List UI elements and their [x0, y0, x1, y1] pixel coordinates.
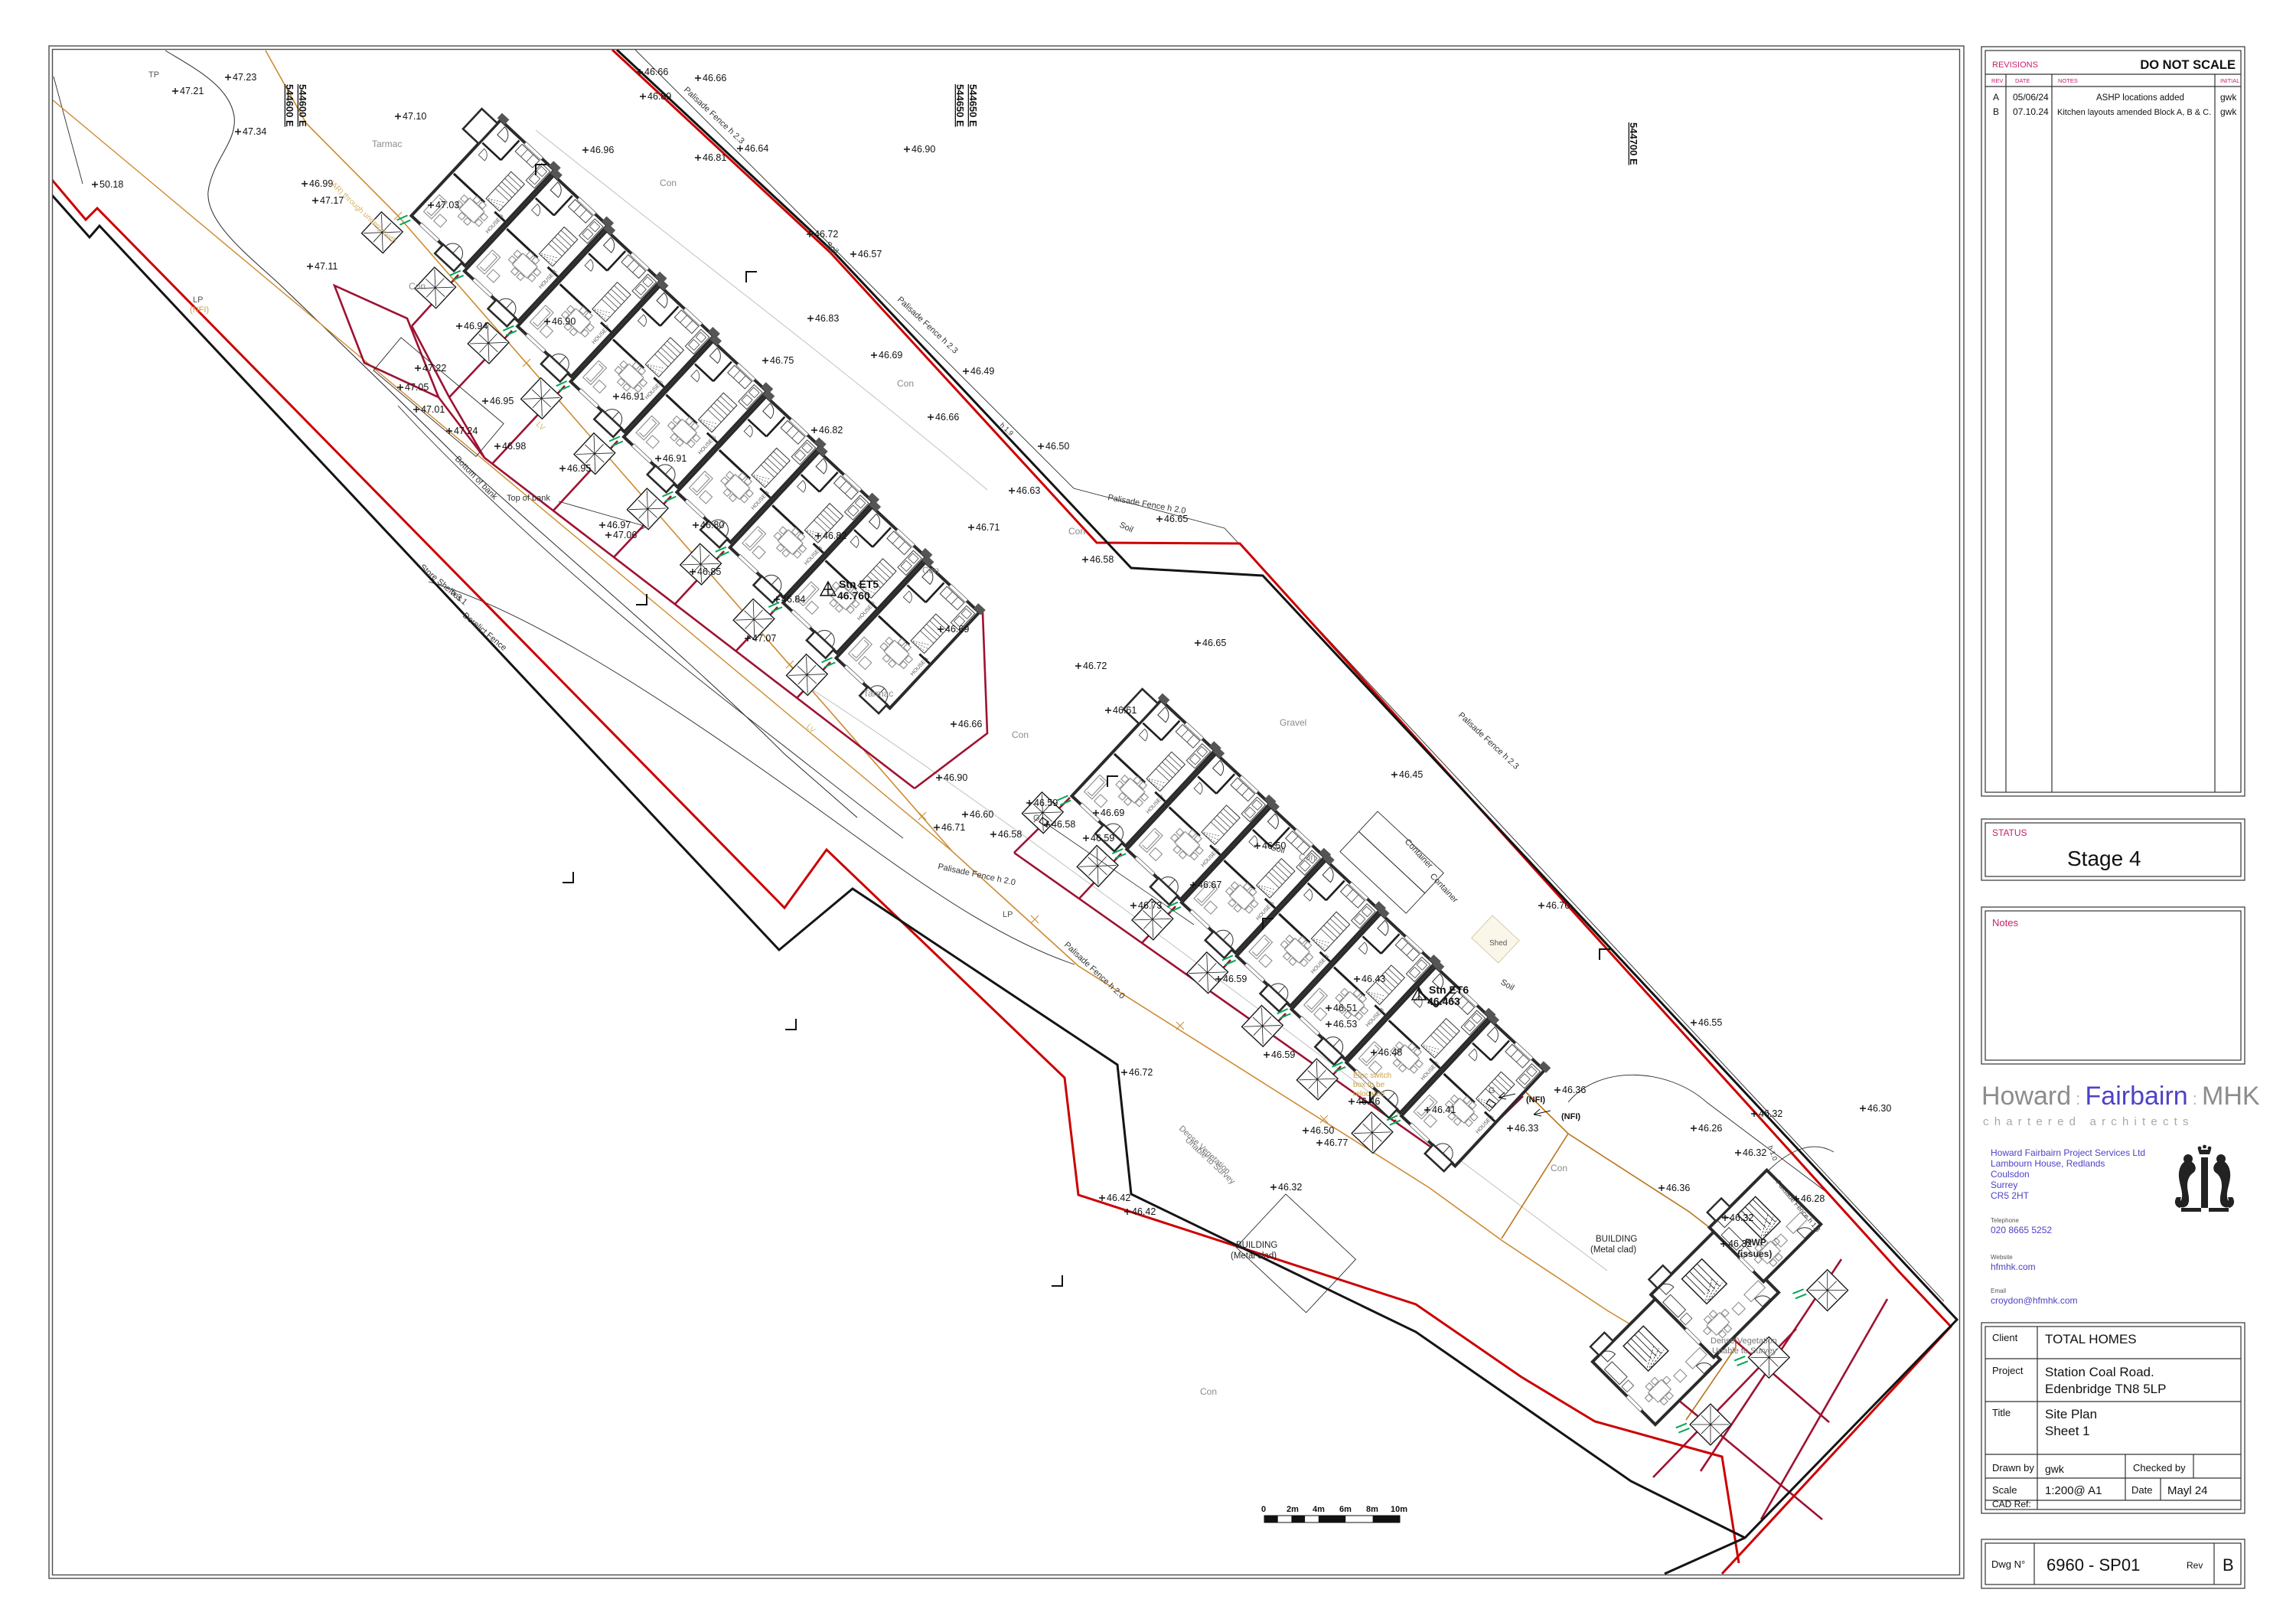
svg-text:46.71: 46.71 — [976, 522, 1000, 533]
svg-text:47.23: 47.23 — [233, 72, 256, 83]
svg-text:Tarmac: Tarmac — [863, 688, 893, 699]
svg-text:544600 E: 544600 E — [297, 84, 308, 127]
svg-text:Sheet 1: Sheet 1 — [2045, 1424, 2090, 1438]
svg-text:0: 0 — [1261, 1505, 1266, 1514]
svg-text:46.81: 46.81 — [703, 152, 726, 163]
svg-text:46.95: 46.95 — [567, 463, 591, 474]
svg-text:46.98: 46.98 — [502, 441, 526, 452]
svg-text:47.01: 47.01 — [421, 404, 445, 415]
svg-text:46.90: 46.90 — [912, 144, 935, 155]
svg-text:(NFI): (NFI) — [1561, 1112, 1580, 1121]
svg-text:46.64: 46.64 — [745, 143, 768, 154]
svg-text:LP: LP — [193, 295, 203, 305]
svg-text:Mayl 24: Mayl 24 — [2167, 1484, 2208, 1497]
svg-text:CAD Ref:: CAD Ref: — [1992, 1499, 2031, 1509]
svg-text:Lambourn House, Redlands: Lambourn House, Redlands — [1991, 1158, 2105, 1169]
svg-text:NOTES: NOTES — [2058, 77, 2078, 84]
svg-text:46.30: 46.30 — [1867, 1103, 1891, 1114]
svg-text:Con: Con — [409, 281, 426, 292]
svg-text:46.90: 46.90 — [552, 316, 576, 327]
svg-text:(issues): (issues) — [1737, 1248, 1772, 1259]
svg-text:46.50: 46.50 — [1045, 441, 1069, 452]
svg-text:gwk: gwk — [2220, 92, 2237, 103]
svg-text:46.33: 46.33 — [1515, 1123, 1538, 1134]
svg-text:46.32: 46.32 — [1730, 1212, 1753, 1223]
svg-text:07.10.24: 07.10.24 — [2013, 106, 2049, 117]
svg-text:Stage 4: Stage 4 — [2067, 847, 2141, 870]
svg-text:STATUS: STATUS — [1992, 827, 2027, 838]
svg-text:46.66: 46.66 — [703, 73, 726, 83]
svg-text:46.59: 46.59 — [1034, 798, 1058, 808]
svg-text:46.69: 46.69 — [879, 350, 902, 361]
svg-text:46.51: 46.51 — [1333, 1003, 1357, 1013]
svg-text:46.65: 46.65 — [1202, 638, 1226, 648]
svg-text:TOTAL HOMES: TOTAL HOMES — [2045, 1332, 2137, 1346]
svg-text:Unable to Survey: Unable to Survey — [1712, 1346, 1777, 1356]
svg-text:46.36: 46.36 — [1666, 1183, 1690, 1193]
svg-text:B: B — [2223, 1555, 2234, 1575]
svg-text:Dwg N°: Dwg N° — [1991, 1558, 2025, 1570]
svg-text:Rev: Rev — [2187, 1560, 2203, 1571]
svg-text:Scale: Scale — [1992, 1484, 2017, 1496]
svg-text:47.05: 47.05 — [405, 382, 429, 393]
svg-text:46.59: 46.59 — [1091, 833, 1114, 844]
svg-text:G: G — [1033, 814, 1040, 823]
svg-text:croydon@hfmhk.com: croydon@hfmhk.com — [1991, 1295, 2078, 1306]
svg-text:hfmhk.com: hfmhk.com — [1991, 1261, 2036, 1272]
svg-text:(Metal clad): (Metal clad) — [1590, 1245, 1636, 1255]
svg-text:47.21: 47.21 — [180, 86, 204, 96]
svg-text:LP: LP — [1003, 910, 1013, 919]
svg-text:46.49: 46.49 — [970, 366, 994, 377]
svg-text:Date: Date — [2131, 1484, 2152, 1496]
svg-text:BUILDING: BUILDING — [1596, 1235, 1637, 1244]
svg-text:DATE: DATE — [2015, 77, 2030, 84]
svg-text:05/06/24: 05/06/24 — [2013, 92, 2049, 103]
svg-text:Project: Project — [1992, 1365, 2024, 1376]
svg-text:RWP: RWP — [1745, 1237, 1766, 1248]
svg-text:46.75: 46.75 — [770, 355, 794, 366]
svg-text:A: A — [1993, 92, 1999, 103]
svg-text:46.66: 46.66 — [958, 719, 982, 729]
svg-text:Top of bank: Top of bank — [507, 494, 550, 503]
svg-text:46.58: 46.58 — [1052, 819, 1075, 830]
svg-text:ASHP locations added: ASHP locations added — [2096, 93, 2184, 103]
svg-text:544600 E: 544600 E — [284, 84, 295, 127]
svg-text:47.07: 47.07 — [752, 633, 776, 644]
svg-text:Con: Con — [660, 178, 677, 188]
svg-text:6m: 6m — [1339, 1505, 1352, 1514]
svg-text:chartered architects: chartered architects — [1983, 1115, 2194, 1128]
svg-text:46.42: 46.42 — [1132, 1206, 1156, 1217]
svg-text:Edenbridge TN8 5LP: Edenbridge TN8 5LP — [2045, 1382, 2166, 1396]
svg-text:6960 - SP01: 6960 - SP01 — [2047, 1555, 2140, 1575]
svg-text:gwk: gwk — [2220, 106, 2237, 117]
svg-text:Notes: Notes — [1992, 917, 2018, 928]
svg-text:relocated: relocated — [1353, 1090, 1384, 1098]
svg-text:B: B — [1993, 106, 1999, 117]
svg-text:46.61: 46.61 — [1113, 705, 1137, 716]
svg-text:Telephone: Telephone — [1991, 1217, 2019, 1224]
svg-text:46.72: 46.72 — [1083, 661, 1107, 671]
svg-text:46.28: 46.28 — [1801, 1193, 1825, 1204]
svg-text:46.66: 46.66 — [644, 67, 668, 77]
svg-text:544650 E: 544650 E — [954, 84, 966, 127]
svg-text:46.45: 46.45 — [1399, 769, 1423, 780]
svg-text:46.97: 46.97 — [607, 520, 631, 530]
svg-text:Con: Con — [897, 378, 914, 389]
svg-text:Checked by: Checked by — [2133, 1462, 2186, 1474]
svg-text:46.26: 46.26 — [1698, 1123, 1722, 1134]
svg-text:4m: 4m — [1313, 1505, 1325, 1514]
svg-text:46.32: 46.32 — [1759, 1108, 1782, 1119]
svg-text:46.66: 46.66 — [935, 412, 959, 423]
svg-text:46.96: 46.96 — [590, 145, 614, 155]
svg-text:Con: Con — [1012, 729, 1029, 740]
svg-text:Con: Con — [1068, 526, 1085, 537]
svg-text:46.59: 46.59 — [1223, 974, 1247, 984]
svg-text:2m: 2m — [1287, 1505, 1299, 1514]
svg-text:Con: Con — [1551, 1163, 1567, 1173]
svg-text:46.463: 46.463 — [1427, 995, 1460, 1007]
svg-text:46.55: 46.55 — [1698, 1017, 1722, 1028]
svg-text:Website: Website — [1991, 1254, 2013, 1261]
svg-text:REV: REV — [1991, 77, 2003, 84]
svg-text:Stn ET5: Stn ET5 — [839, 578, 879, 590]
svg-text:46.73: 46.73 — [1138, 900, 1162, 911]
svg-text:gwk: gwk — [2045, 1463, 2065, 1475]
svg-text:Howard Fairbairn Project Servi: Howard Fairbairn Project Services Ltd — [1991, 1147, 2145, 1158]
svg-text:46.67: 46.67 — [1198, 880, 1221, 890]
svg-text:Surrey: Surrey — [1991, 1180, 2017, 1190]
svg-text:46.70: 46.70 — [1546, 900, 1570, 911]
svg-text:(Metal clad): (Metal clad) — [1231, 1252, 1277, 1261]
svg-text:46.63: 46.63 — [1016, 485, 1040, 496]
svg-text:46.77: 46.77 — [1324, 1137, 1348, 1148]
svg-text:46.59: 46.59 — [1271, 1049, 1295, 1060]
svg-text:Tarmac: Tarmac — [372, 139, 402, 149]
svg-text:Kitchen layouts amended Block: Kitchen layouts amended Block A, B & C. — [2057, 108, 2211, 117]
svg-text:46.83: 46.83 — [815, 313, 839, 324]
svg-text:10m: 10m — [1391, 1505, 1407, 1514]
svg-text:Stn ET6: Stn ET6 — [1429, 984, 1469, 996]
svg-text:8m: 8m — [1366, 1505, 1378, 1514]
svg-text:G: G — [1489, 1086, 1495, 1095]
svg-text:box to be: box to be — [1353, 1081, 1385, 1089]
svg-text:Gravel: Gravel — [1280, 717, 1306, 728]
svg-text:(NFI): (NFI) — [1526, 1095, 1545, 1105]
svg-text:Site Plan: Site Plan — [2045, 1407, 2097, 1421]
svg-text:46.32: 46.32 — [1743, 1147, 1766, 1158]
svg-text:46.42: 46.42 — [1107, 1193, 1130, 1203]
svg-text:(NFI): (NFI) — [190, 305, 209, 315]
svg-text:46.91: 46.91 — [621, 391, 644, 402]
svg-text:CR5 2HT: CR5 2HT — [1991, 1190, 2030, 1201]
svg-text:Coulsdon: Coulsdon — [1991, 1169, 2030, 1180]
svg-text:DO NOT SCALE: DO NOT SCALE — [2140, 58, 2236, 72]
svg-text:46.80: 46.80 — [700, 520, 724, 530]
svg-text:46.85: 46.85 — [697, 566, 721, 577]
svg-text:46.72: 46.72 — [814, 229, 838, 240]
svg-text:46.43: 46.43 — [1362, 974, 1385, 984]
svg-text:46.69: 46.69 — [945, 624, 969, 635]
svg-text:47.03: 47.03 — [435, 200, 459, 211]
svg-text:Con: Con — [922, 565, 939, 576]
svg-text:REVISIONS: REVISIONS — [1992, 60, 2038, 70]
svg-text:46.82: 46.82 — [823, 530, 846, 541]
svg-text:46.32: 46.32 — [1278, 1182, 1302, 1193]
svg-text:544650 E: 544650 E — [967, 84, 979, 127]
svg-text:TP: TP — [148, 70, 159, 80]
svg-text:INITIAL: INITIAL — [2220, 77, 2239, 84]
svg-text:47.11: 47.11 — [315, 261, 338, 272]
svg-text:46.50: 46.50 — [1310, 1125, 1334, 1136]
svg-text:46.82: 46.82 — [819, 425, 843, 436]
svg-text:Con: Con — [1200, 1386, 1217, 1397]
svg-text:Howard : Fairbairn : MHK: Howard : Fairbairn : MHK — [1981, 1082, 2260, 1111]
svg-text:020 8665 5252: 020 8665 5252 — [1991, 1225, 2052, 1235]
svg-text:47.22: 47.22 — [422, 363, 446, 374]
svg-text:Con: Con — [1299, 852, 1316, 863]
svg-text:46.58: 46.58 — [1090, 554, 1114, 565]
svg-text:46.48: 46.48 — [1378, 1047, 1402, 1058]
svg-text:Elec switch: Elec switch — [1353, 1072, 1391, 1080]
svg-text:Shed: Shed — [1489, 939, 1507, 948]
svg-text:47.34: 47.34 — [243, 126, 266, 137]
svg-text:46.60: 46.60 — [970, 809, 993, 820]
svg-text:46.53: 46.53 — [1333, 1019, 1357, 1030]
svg-text:1:200@ A1: 1:200@ A1 — [2045, 1484, 2102, 1497]
svg-text:46.84: 46.84 — [781, 594, 805, 605]
svg-text:46.94: 46.94 — [464, 321, 488, 331]
svg-text:46.41: 46.41 — [1432, 1105, 1456, 1115]
svg-text:46.71: 46.71 — [941, 822, 965, 833]
svg-text:46.57: 46.57 — [858, 249, 882, 259]
svg-text:46.58: 46.58 — [998, 829, 1022, 840]
svg-text:47.10: 47.10 — [403, 111, 426, 122]
svg-text:Dense Vegetation: Dense Vegetation — [1711, 1336, 1777, 1346]
svg-text:46.95: 46.95 — [490, 396, 514, 406]
svg-text:46.90: 46.90 — [944, 772, 967, 783]
svg-text:46.91: 46.91 — [663, 453, 687, 464]
svg-text:46.89: 46.89 — [647, 91, 671, 102]
svg-text:Title: Title — [1992, 1407, 2011, 1418]
svg-text:46.72: 46.72 — [1129, 1067, 1153, 1078]
svg-text:47.06: 47.06 — [613, 530, 637, 540]
svg-text:BUILDING: BUILDING — [1236, 1241, 1277, 1250]
svg-text:Client: Client — [1992, 1332, 2018, 1343]
svg-text:Email: Email — [1991, 1287, 2006, 1294]
svg-text:46.69: 46.69 — [1101, 808, 1124, 818]
svg-text:46.36: 46.36 — [1562, 1085, 1586, 1095]
svg-text:544700 E: 544700 E — [1628, 122, 1639, 165]
svg-text:47.24: 47.24 — [454, 426, 478, 436]
svg-text:46.760: 46.760 — [837, 589, 870, 602]
svg-text:Station Coal Road.: Station Coal Road. — [2045, 1365, 2154, 1379]
svg-text:Drawn by: Drawn by — [1992, 1462, 2034, 1474]
svg-text:50.18: 50.18 — [99, 179, 123, 190]
